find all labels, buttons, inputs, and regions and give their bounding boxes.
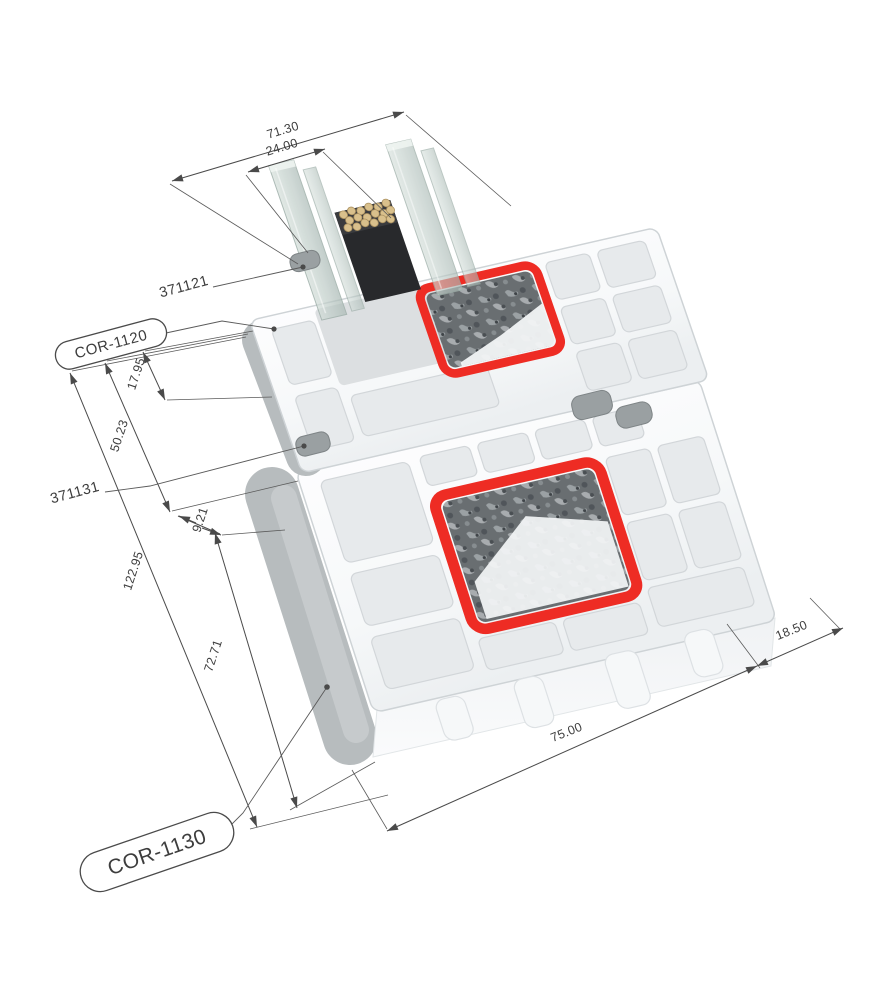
- dim-text-18-50: 18.50: [774, 618, 810, 643]
- extension-line: [810, 598, 841, 630]
- extension-line: [352, 770, 387, 829]
- dim-text-122-95: 122.95: [120, 550, 146, 592]
- profile-cutaway-drawing: 71.30 24.00 17.95 50.23 9.21 122.95 72.7…: [0, 0, 875, 1000]
- glazing-unit: [269, 129, 481, 322]
- dim-line-122-95: [70, 373, 257, 827]
- part-number-upper: 371121: [158, 273, 211, 301]
- leader-dot: [301, 443, 306, 448]
- dim-arrow-9-21-right: [202, 528, 221, 535]
- part-number-lower: 371131: [49, 479, 102, 507]
- technical-illustration: 71.30 24.00 17.95 50.23 9.21 122.95 72.7…: [0, 0, 875, 1000]
- leader-371121: [213, 267, 303, 287]
- dim-line-17-95: [143, 352, 165, 400]
- dim-text-75-00: 75.00: [549, 720, 585, 745]
- callout-cor-1120: COR-1120: [52, 316, 169, 373]
- steel-reinforcement-chamber-frame: [432, 460, 640, 632]
- callout-cor-1130: COR-1130: [75, 807, 239, 897]
- extension-line: [290, 762, 375, 810]
- extension-line: [167, 397, 272, 400]
- leader-dot: [324, 684, 330, 690]
- leader-dot: [300, 264, 305, 269]
- dim-text-50-23: 50.23: [107, 418, 130, 454]
- dim-text-17-95: 17.95: [124, 356, 147, 392]
- extension-line: [250, 795, 388, 829]
- leader-dot: [271, 326, 276, 331]
- dim-text-72-71: 72.71: [201, 638, 224, 674]
